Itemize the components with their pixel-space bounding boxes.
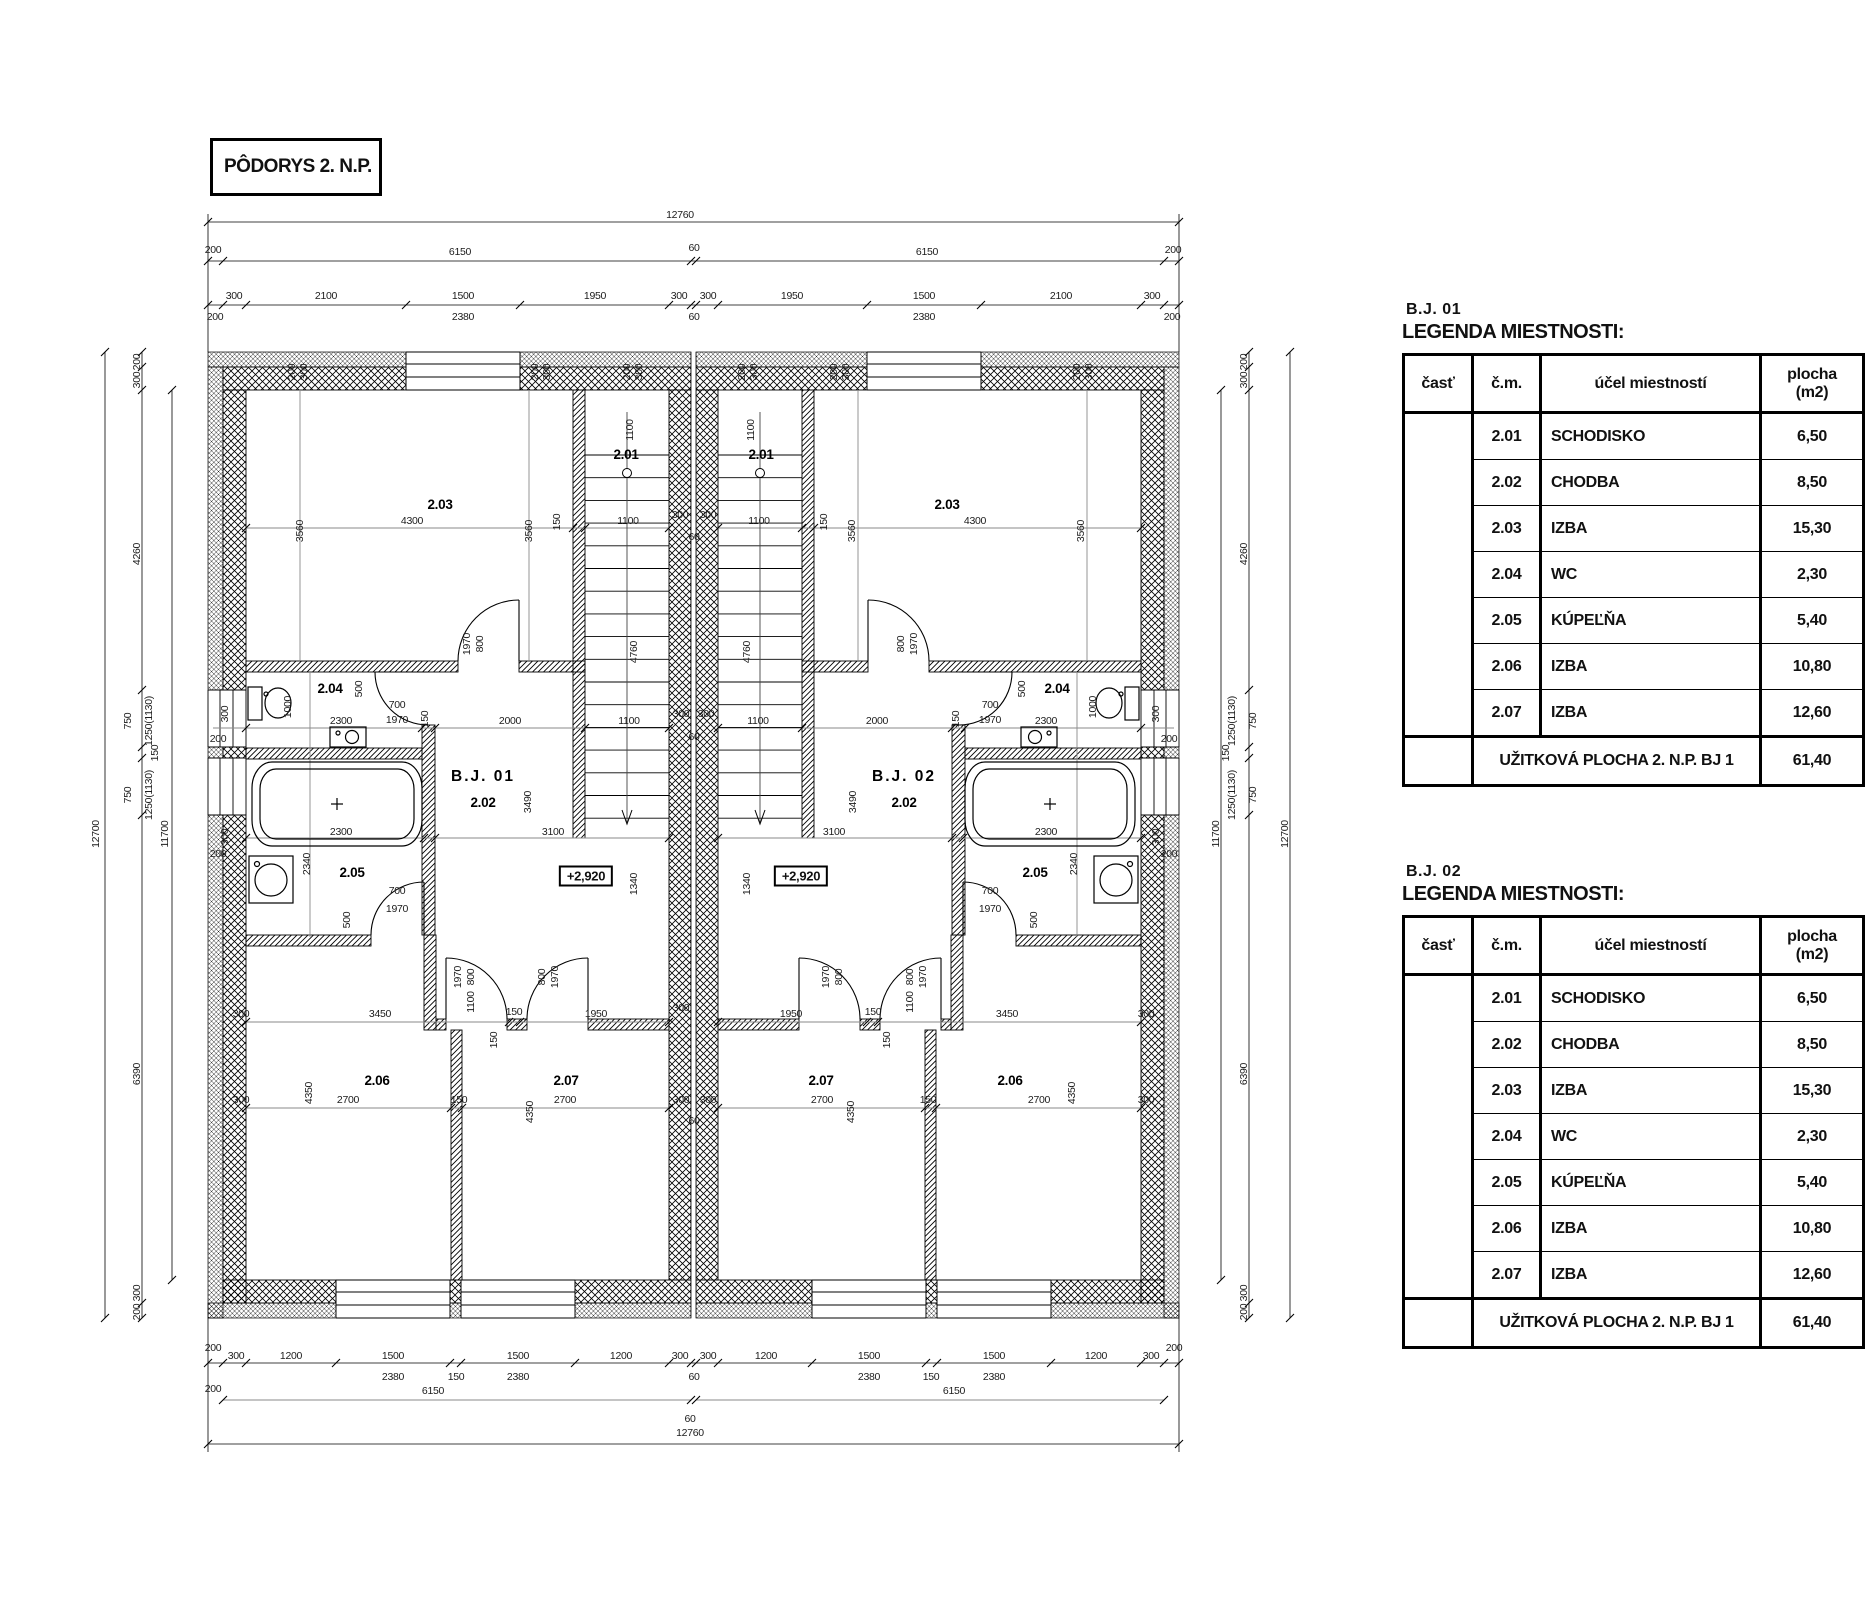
legend-row: 2.04WC2,30 bbox=[1404, 552, 1864, 598]
legend-cell: 2.03 bbox=[1473, 506, 1541, 552]
dim-label: 1200 bbox=[1085, 1350, 1108, 1362]
legend-cell: CHODBA bbox=[1541, 1022, 1761, 1068]
dim-label: 1500 bbox=[913, 290, 936, 302]
dim-label: 1340 bbox=[628, 872, 640, 895]
walls bbox=[208, 352, 1179, 1318]
legend-cell: č.m. bbox=[1473, 917, 1541, 975]
dim-label: 3560 bbox=[294, 519, 306, 542]
dim-label: 1250(1130) bbox=[1226, 696, 1238, 746]
legend-cell: CHODBA bbox=[1541, 460, 1761, 506]
legend-cell: časť bbox=[1404, 355, 1473, 413]
legend-cell: plocha(m2) bbox=[1761, 917, 1864, 975]
legend-row: 2.06IZBA10,80 bbox=[1404, 644, 1864, 690]
dim-label: 4300 bbox=[401, 515, 424, 527]
dim-label: 1100 bbox=[618, 715, 640, 727]
dim-label: 2340 bbox=[1068, 852, 1080, 875]
dim-label: 3450 bbox=[369, 1008, 392, 1020]
legend-cell: IZBA bbox=[1541, 690, 1761, 737]
dim-label: 150 bbox=[506, 1006, 523, 1018]
dim-label: 800 bbox=[474, 635, 486, 652]
legend-cell: 10,80 bbox=[1761, 1206, 1864, 1252]
legend-cell: 2.06 bbox=[1473, 1206, 1541, 1252]
dim-label: 200 bbox=[205, 1342, 222, 1354]
dim-label: 2100 bbox=[315, 290, 338, 302]
dim-label: 12700 bbox=[1279, 820, 1291, 848]
dim-label: 700 bbox=[982, 699, 999, 711]
dim-label: 300 bbox=[541, 363, 553, 380]
dim-label: 300 bbox=[1238, 371, 1250, 388]
dim-label: 2000 bbox=[499, 715, 522, 727]
dim-label: 2700 bbox=[554, 1094, 577, 1106]
legend-cell: KÚPEĽŇA bbox=[1541, 1160, 1761, 1206]
legend-row: 2.02CHODBA8,50 bbox=[1404, 1022, 1864, 1068]
legend-cell bbox=[1404, 413, 1473, 737]
dim-label: 300 bbox=[233, 1094, 250, 1106]
legend-cell: IZBA bbox=[1541, 1252, 1761, 1299]
legend-cell: 2.07 bbox=[1473, 1252, 1541, 1299]
legend-cell: 5,40 bbox=[1761, 598, 1864, 644]
dim-label: 6390 bbox=[1238, 1062, 1250, 1085]
dim-label: 800 bbox=[465, 968, 477, 985]
legend-cell: 2.07 bbox=[1473, 690, 1541, 737]
dim-label: 11700 bbox=[1210, 820, 1222, 847]
dim-label: 150 bbox=[149, 744, 161, 761]
dim-label: 300 bbox=[1238, 1284, 1250, 1301]
legend-cell: 2.06 bbox=[1473, 644, 1541, 690]
dim-label: 300 bbox=[298, 363, 310, 380]
dim-label: 1970 bbox=[908, 632, 920, 655]
legend-cell: 2.04 bbox=[1473, 552, 1541, 598]
room-label: 2.06 bbox=[364, 1073, 390, 1088]
level-marker: +2,920 bbox=[774, 866, 828, 887]
dim-label: 11700 bbox=[159, 820, 171, 847]
legend-cell: KÚPEĽŇA bbox=[1541, 598, 1761, 644]
dim-label: 200 bbox=[131, 353, 143, 370]
legend-row: 2.03IZBA15,30 bbox=[1404, 506, 1864, 552]
legend-footer: UŽITKOVÁ PLOCHA 2. N.P. BJ 161,40 bbox=[1404, 737, 1864, 786]
dim-label: 1500 bbox=[858, 1350, 881, 1362]
legend-cell: plocha(m2) bbox=[1761, 355, 1864, 413]
legend-unit-label: B.J. 01 bbox=[1406, 301, 1863, 319]
dim-label: 300 bbox=[1138, 1008, 1155, 1020]
dim-label: 150 bbox=[1220, 744, 1232, 761]
room-label: 2.06 bbox=[997, 1073, 1023, 1088]
dim-label: 200 bbox=[1238, 1303, 1250, 1320]
dim-label: 200 bbox=[1238, 353, 1250, 370]
dim-label: 150 bbox=[818, 513, 830, 530]
dim-label: 12760 bbox=[676, 1427, 704, 1439]
dim-label: 750 bbox=[1247, 786, 1259, 803]
room-label: 2.04 bbox=[317, 681, 343, 696]
legend-cell: 2.04 bbox=[1473, 1114, 1541, 1160]
legend-cell: účel miestností bbox=[1541, 917, 1761, 975]
dim-label: 700 bbox=[389, 885, 406, 897]
level-marker: +2,920 bbox=[559, 866, 613, 887]
room-label: 2.04 bbox=[1044, 681, 1070, 696]
dim-label: 200 bbox=[828, 363, 840, 380]
legend-cell: 5,40 bbox=[1761, 1160, 1864, 1206]
dim-label: 4260 bbox=[131, 542, 143, 565]
dim-label: 3450 bbox=[996, 1008, 1019, 1020]
dim-label: 500 bbox=[1028, 911, 1040, 928]
dim-label: 300 bbox=[700, 290, 717, 302]
dim-label: 750 bbox=[1247, 712, 1259, 729]
dim-label: 1100 bbox=[748, 515, 770, 527]
dim-label: 700 bbox=[982, 885, 999, 897]
dim-label: 1970 bbox=[452, 965, 464, 988]
dim-label: 1100 bbox=[904, 991, 916, 1013]
legend-cell: 61,40 bbox=[1761, 737, 1864, 786]
dim-label: 200 bbox=[1166, 1342, 1183, 1354]
dim-label: 2380 bbox=[382, 1371, 405, 1383]
legend-cell: IZBA bbox=[1541, 506, 1761, 552]
legend-row: 2.04WC2,30 bbox=[1404, 1114, 1864, 1160]
dim-label: 300 bbox=[1143, 1350, 1160, 1362]
dim-label: 2300 bbox=[1035, 826, 1058, 838]
floor-plan: 1276061506061502002003002100150019503003… bbox=[0, 0, 1868, 1620]
dim-label: 1500 bbox=[382, 1350, 405, 1362]
dim-label: 750 bbox=[122, 786, 134, 803]
dim-label: 60 bbox=[688, 731, 700, 743]
dim-label: 1100 bbox=[465, 991, 477, 1013]
dim-label: 300 bbox=[698, 708, 715, 720]
legend-block-bj01: B.J. 01 LEGENDA MIESTNOSTI: časťč.m.účel… bbox=[1402, 301, 1863, 787]
dim-label: 150 bbox=[950, 710, 962, 727]
dim-label: 3490 bbox=[847, 790, 859, 813]
dim-label: 300 bbox=[672, 1350, 689, 1362]
dim-label: 1200 bbox=[755, 1350, 778, 1362]
dim-label: 150 bbox=[865, 1006, 882, 1018]
dim-label: 4760 bbox=[628, 640, 640, 663]
dim-label: 300 bbox=[748, 363, 760, 380]
dim-label: 1970 bbox=[979, 903, 1002, 915]
dim-label: 150 bbox=[419, 710, 431, 727]
dim-label: 300 bbox=[228, 1350, 245, 1362]
dim-label: 60 bbox=[688, 1371, 700, 1383]
legend-row: 2.05KÚPEĽŇA5,40 bbox=[1404, 598, 1864, 644]
dim-label: 800 bbox=[833, 968, 845, 985]
dim-label: 2700 bbox=[337, 1094, 360, 1106]
legend-cell: WC bbox=[1541, 1114, 1761, 1160]
dim-label: 300 bbox=[633, 363, 645, 380]
dim-label: 12760 bbox=[666, 209, 694, 221]
dim-label: 200 bbox=[286, 363, 298, 380]
dim-label: 3100 bbox=[823, 826, 846, 838]
dim-label: 200 bbox=[210, 848, 227, 860]
dim-label: 150 bbox=[923, 1371, 940, 1383]
legend-cell bbox=[1404, 975, 1473, 1299]
legend-cell: účel miestností bbox=[1541, 355, 1761, 413]
legend-cell: IZBA bbox=[1541, 1068, 1761, 1114]
legend-cell: 8,50 bbox=[1761, 460, 1864, 506]
legend-cell: 10,80 bbox=[1761, 644, 1864, 690]
legend-footer: UŽITKOVÁ PLOCHA 2. N.P. BJ 161,40 bbox=[1404, 1299, 1864, 1348]
dim-label: 800 bbox=[904, 968, 916, 985]
dim-label: 2380 bbox=[983, 1371, 1006, 1383]
dim-label: 200 bbox=[1165, 244, 1182, 256]
legend-heading: LEGENDA MIESTNOSTI: bbox=[1402, 321, 1863, 344]
dim-label: 4260 bbox=[1238, 542, 1250, 565]
legend-cell: IZBA bbox=[1541, 1206, 1761, 1252]
dim-label: 200 bbox=[1071, 363, 1083, 380]
dim-label: 1340 bbox=[741, 872, 753, 895]
dim-label: 1970 bbox=[917, 965, 929, 988]
dim-label: 6150 bbox=[943, 1385, 966, 1397]
legend-cell: 2.01 bbox=[1473, 975, 1541, 1022]
dim-label: 1970 bbox=[386, 903, 409, 915]
legend-cell: WC bbox=[1541, 552, 1761, 598]
dim-label: 800 bbox=[536, 968, 548, 985]
dim-label: 300 bbox=[1083, 363, 1095, 380]
room-label: 2.01 bbox=[613, 447, 639, 462]
unit-label: B.J. 01 bbox=[451, 768, 515, 785]
dim-label: 300 bbox=[226, 290, 243, 302]
legend-cell: č.m. bbox=[1473, 355, 1541, 413]
legend-cell: UŽITKOVÁ PLOCHA 2. N.P. BJ 1 bbox=[1473, 1299, 1761, 1348]
dim-label: 200 bbox=[205, 1383, 222, 1395]
legend-table-bj02: časťč.m.účel miestnostíplocha(m2)2.01SCH… bbox=[1402, 915, 1865, 1349]
dim-label: 300 bbox=[671, 290, 688, 302]
dim-label: 300 bbox=[1144, 290, 1161, 302]
dim-label: 1100 bbox=[745, 419, 757, 441]
dim-label: 1500 bbox=[983, 1350, 1006, 1362]
dim-label: 300 bbox=[131, 1284, 143, 1301]
dim-label: 2380 bbox=[507, 1371, 530, 1383]
dim-label: 6150 bbox=[916, 246, 939, 258]
legend-row: 2.07IZBA12,60 bbox=[1404, 690, 1864, 737]
legend-row: 2.02CHODBA8,50 bbox=[1404, 460, 1864, 506]
dim-label: 300 bbox=[673, 1002, 690, 1014]
legend-cell: IZBA bbox=[1541, 644, 1761, 690]
legend-cell: časť bbox=[1404, 917, 1473, 975]
dim-label: 4350 bbox=[303, 1081, 315, 1104]
dim-label: 200 bbox=[529, 363, 541, 380]
dim-label: 300 bbox=[700, 509, 717, 521]
room-label: 2.03 bbox=[934, 497, 960, 512]
dim-label: 3560 bbox=[523, 519, 535, 542]
dim-label: 500 bbox=[353, 680, 365, 697]
legend-cell: UŽITKOVÁ PLOCHA 2. N.P. BJ 1 bbox=[1473, 737, 1761, 786]
dim-label: 60 bbox=[688, 1115, 700, 1127]
dim-label: 200 bbox=[1164, 311, 1181, 323]
legend-cell: 2.01 bbox=[1473, 413, 1541, 460]
dim-label: 700 bbox=[389, 699, 406, 711]
dim-label: 150 bbox=[920, 1094, 937, 1106]
dim-label: 4350 bbox=[1066, 1081, 1078, 1104]
dim-label: 500 bbox=[341, 911, 353, 928]
legend-cell bbox=[1404, 1299, 1473, 1348]
room-label: 2.05 bbox=[1022, 865, 1048, 880]
legend-cell: 2,30 bbox=[1761, 552, 1864, 598]
dim-label: 200 bbox=[1161, 733, 1178, 745]
legend-row: 2.05KÚPEĽŇA5,40 bbox=[1404, 1160, 1864, 1206]
dim-label: 1250(1130) bbox=[1226, 770, 1238, 820]
dim-label: 1200 bbox=[280, 1350, 303, 1362]
unit-label: B.J. 02 bbox=[872, 768, 936, 785]
legend-row: 2.01SCHODISKO6,50 bbox=[1404, 413, 1864, 460]
room-label: 2.03 bbox=[427, 497, 453, 512]
dim-label: 1000 bbox=[282, 695, 294, 718]
dim-label: 3100 bbox=[542, 826, 565, 838]
dim-label: 2340 bbox=[301, 852, 313, 875]
dim-label: 200 bbox=[207, 311, 224, 323]
dim-label: 1950 bbox=[584, 290, 607, 302]
room-label: 2.02 bbox=[470, 795, 495, 810]
dim-label: 1000 bbox=[1087, 695, 1099, 718]
dim-label: 2300 bbox=[1035, 715, 1058, 727]
dim-label: 200 bbox=[210, 733, 227, 745]
legend-cell bbox=[1404, 737, 1473, 786]
dim-label: 200 bbox=[131, 1303, 143, 1320]
room-label: 2.07 bbox=[808, 1073, 833, 1088]
dim-label: 2380 bbox=[452, 311, 475, 323]
dim-label: 4760 bbox=[741, 640, 753, 663]
legend-cell: 12,60 bbox=[1761, 690, 1864, 737]
dim-label: 200 bbox=[736, 363, 748, 380]
dim-label: 4300 bbox=[964, 515, 987, 527]
dim-label: 200 bbox=[621, 363, 633, 380]
dim-label: 150 bbox=[448, 1371, 465, 1383]
dim-label: 2380 bbox=[858, 1371, 881, 1383]
dim-label: 300 bbox=[700, 1350, 717, 1362]
dim-label: 150 bbox=[881, 1031, 893, 1048]
legend-row: 2.07IZBA12,60 bbox=[1404, 1252, 1864, 1299]
dim-label: 300 bbox=[219, 705, 231, 722]
dim-label: 2700 bbox=[1028, 1094, 1051, 1106]
legend-row: 2.03IZBA15,30 bbox=[1404, 1068, 1864, 1114]
dim-label: 2380 bbox=[913, 311, 936, 323]
legend-table-bj01: časťč.m.účel miestnostíplocha(m2)2.01SCH… bbox=[1402, 353, 1865, 787]
dim-label: 2300 bbox=[330, 826, 353, 838]
dim-label: 60 bbox=[688, 242, 700, 254]
room-label: 2.02 bbox=[891, 795, 916, 810]
room-label: 2.05 bbox=[339, 865, 365, 880]
dim-label: 200 bbox=[205, 244, 222, 256]
dim-label: 1500 bbox=[507, 1350, 530, 1362]
room-label: 2.01 bbox=[748, 447, 774, 462]
dim-label: 800 bbox=[895, 635, 907, 652]
legend-cell: 61,40 bbox=[1761, 1299, 1864, 1348]
legend-heading: LEGENDA MIESTNOSTI: bbox=[1402, 883, 1863, 906]
dim-label: 60 bbox=[684, 1413, 696, 1425]
dim-label: 300 bbox=[1150, 828, 1162, 845]
dim-label: 4350 bbox=[845, 1100, 857, 1123]
dim-label: 1100 bbox=[747, 715, 769, 727]
dim-label: 300 bbox=[1138, 1094, 1155, 1106]
legend-cell: 6,50 bbox=[1761, 413, 1864, 460]
dim-label: 300 bbox=[673, 708, 690, 720]
legend-cell: 2.02 bbox=[1473, 460, 1541, 506]
dim-label: 1970 bbox=[386, 714, 409, 726]
dim-label: 1100 bbox=[617, 515, 639, 527]
legend-cell: 2,30 bbox=[1761, 1114, 1864, 1160]
dim-label: 300 bbox=[840, 363, 852, 380]
dim-label: 1970 bbox=[979, 714, 1002, 726]
dim-label: 150 bbox=[451, 1094, 468, 1106]
dim-label: 2300 bbox=[330, 715, 353, 727]
dim-label: 1200 bbox=[610, 1350, 633, 1362]
dim-label: 3490 bbox=[522, 790, 534, 813]
legend-cell: 2.05 bbox=[1473, 598, 1541, 644]
dim-label: 1100 bbox=[624, 419, 636, 441]
dim-label: 12700 bbox=[90, 820, 102, 848]
drawing-sheet: PÔDORYS 2. N.P. 127606150606150200200300… bbox=[0, 0, 1868, 1620]
dim-label: 2000 bbox=[866, 715, 889, 727]
dim-label: 750 bbox=[122, 712, 134, 729]
dim-label: 1950 bbox=[585, 1008, 608, 1020]
dim-label: 1500 bbox=[452, 290, 475, 302]
dim-label: 60 bbox=[688, 311, 700, 323]
legend-cell: 15,30 bbox=[1761, 506, 1864, 552]
dim-label: 3560 bbox=[846, 519, 858, 542]
dim-label: 1970 bbox=[549, 965, 561, 988]
dim-label: 60 bbox=[688, 531, 700, 543]
dim-label: 200 bbox=[1161, 848, 1178, 860]
dim-label: 6390 bbox=[131, 1062, 143, 1085]
legend-cell: 15,30 bbox=[1761, 1068, 1864, 1114]
dim-label: 500 bbox=[1016, 680, 1028, 697]
dim-label: 300 bbox=[672, 509, 689, 521]
legend-block-bj02: B.J. 02 LEGENDA MIESTNOSTI: časťč.m.účel… bbox=[1402, 863, 1863, 1349]
dim-label: 300 bbox=[700, 1094, 717, 1106]
legend-unit-label: B.J. 02 bbox=[1406, 863, 1863, 881]
dim-label: 1950 bbox=[780, 1008, 803, 1020]
dim-label: 150 bbox=[551, 513, 563, 530]
legend-cell: 6,50 bbox=[1761, 975, 1864, 1022]
legend-cell: 2.02 bbox=[1473, 1022, 1541, 1068]
legend-cell: 12,60 bbox=[1761, 1252, 1864, 1299]
dim-label: 1950 bbox=[781, 290, 804, 302]
dim-label: 1250(1130) bbox=[143, 696, 155, 746]
dim-label: 150 bbox=[488, 1031, 500, 1048]
dim-label: 2100 bbox=[1050, 290, 1073, 302]
legend-cell: 2.03 bbox=[1473, 1068, 1541, 1114]
legend-cell: 8,50 bbox=[1761, 1022, 1864, 1068]
dim-label: 300 bbox=[233, 1008, 250, 1020]
room-label: 2.07 bbox=[553, 1073, 578, 1088]
dim-label: 300 bbox=[673, 1094, 690, 1106]
dim-label: 3560 bbox=[1075, 519, 1087, 542]
dim-label: 300 bbox=[219, 828, 231, 845]
dim-label: 300 bbox=[131, 371, 143, 388]
legend-row: 2.01SCHODISKO6,50 bbox=[1404, 975, 1864, 1022]
legend-cell: 2.05 bbox=[1473, 1160, 1541, 1206]
dim-label: 1970 bbox=[461, 632, 473, 655]
legend-cell: SCHODISKO bbox=[1541, 413, 1761, 460]
dim-label: 2700 bbox=[811, 1094, 834, 1106]
dim-label: 6150 bbox=[449, 246, 472, 258]
dim-label: 6150 bbox=[422, 1385, 445, 1397]
dim-label: 4350 bbox=[524, 1100, 536, 1123]
dim-label: 300 bbox=[1150, 705, 1162, 722]
dim-label: 1250(1130) bbox=[143, 770, 155, 820]
legend-row: 2.06IZBA10,80 bbox=[1404, 1206, 1864, 1252]
legend-cell: SCHODISKO bbox=[1541, 975, 1761, 1022]
dim-label: 1970 bbox=[820, 965, 832, 988]
